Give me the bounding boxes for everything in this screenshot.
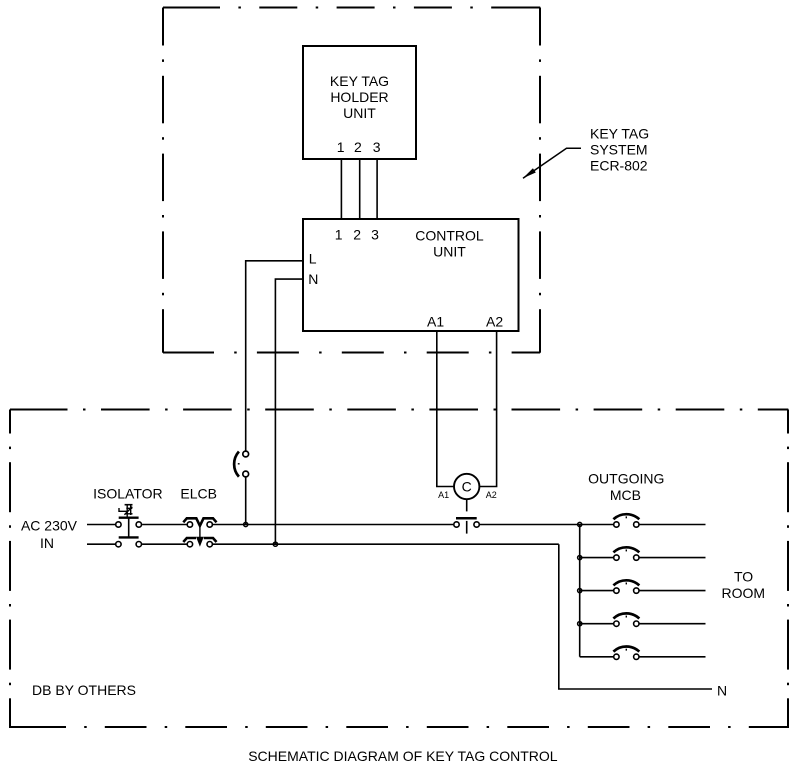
svg-text:TO: TO — [734, 569, 753, 585]
svg-text:MCB: MCB — [610, 487, 641, 503]
svg-text:IN: IN — [40, 535, 54, 551]
svg-text:A1: A1 — [438, 490, 449, 500]
svg-text:2: 2 — [353, 227, 361, 243]
svg-text:CONTROL: CONTROL — [415, 228, 484, 244]
svg-text:1: 1 — [335, 227, 343, 243]
svg-text:ROOM: ROOM — [722, 585, 766, 601]
svg-text:3: 3 — [371, 227, 379, 243]
svg-text:N: N — [717, 683, 727, 699]
svg-text:AC 230V: AC 230V — [21, 518, 78, 534]
svg-text:ISOLATOR: ISOLATOR — [93, 486, 163, 502]
svg-text:UNIT: UNIT — [433, 244, 466, 260]
svg-text:A2: A2 — [486, 490, 497, 500]
svg-text:1: 1 — [337, 139, 345, 155]
svg-text:SCHEMATIC DIAGRAM OF KEY TAG C: SCHEMATIC DIAGRAM OF KEY TAG CONTROL — [248, 748, 558, 764]
svg-text:ELCB: ELCB — [180, 486, 217, 502]
svg-text:UNIT: UNIT — [343, 105, 376, 121]
svg-text:KEY TAG: KEY TAG — [590, 126, 649, 142]
svg-text:OUTGOING: OUTGOING — [588, 471, 664, 487]
svg-text:3: 3 — [373, 139, 381, 155]
svg-text:N: N — [308, 271, 318, 287]
svg-text:DB BY OTHERS: DB BY OTHERS — [32, 682, 136, 698]
svg-text:HOLDER: HOLDER — [330, 89, 388, 105]
svg-text:A1: A1 — [427, 314, 444, 330]
svg-text:ECR-802: ECR-802 — [590, 158, 648, 174]
svg-text:KEY TAG: KEY TAG — [330, 73, 389, 89]
svg-text:C: C — [462, 479, 472, 495]
svg-text:SYSTEM: SYSTEM — [590, 142, 648, 158]
svg-text:2: 2 — [354, 139, 362, 155]
svg-text:L: L — [309, 251, 317, 267]
svg-text:A2: A2 — [486, 314, 503, 330]
